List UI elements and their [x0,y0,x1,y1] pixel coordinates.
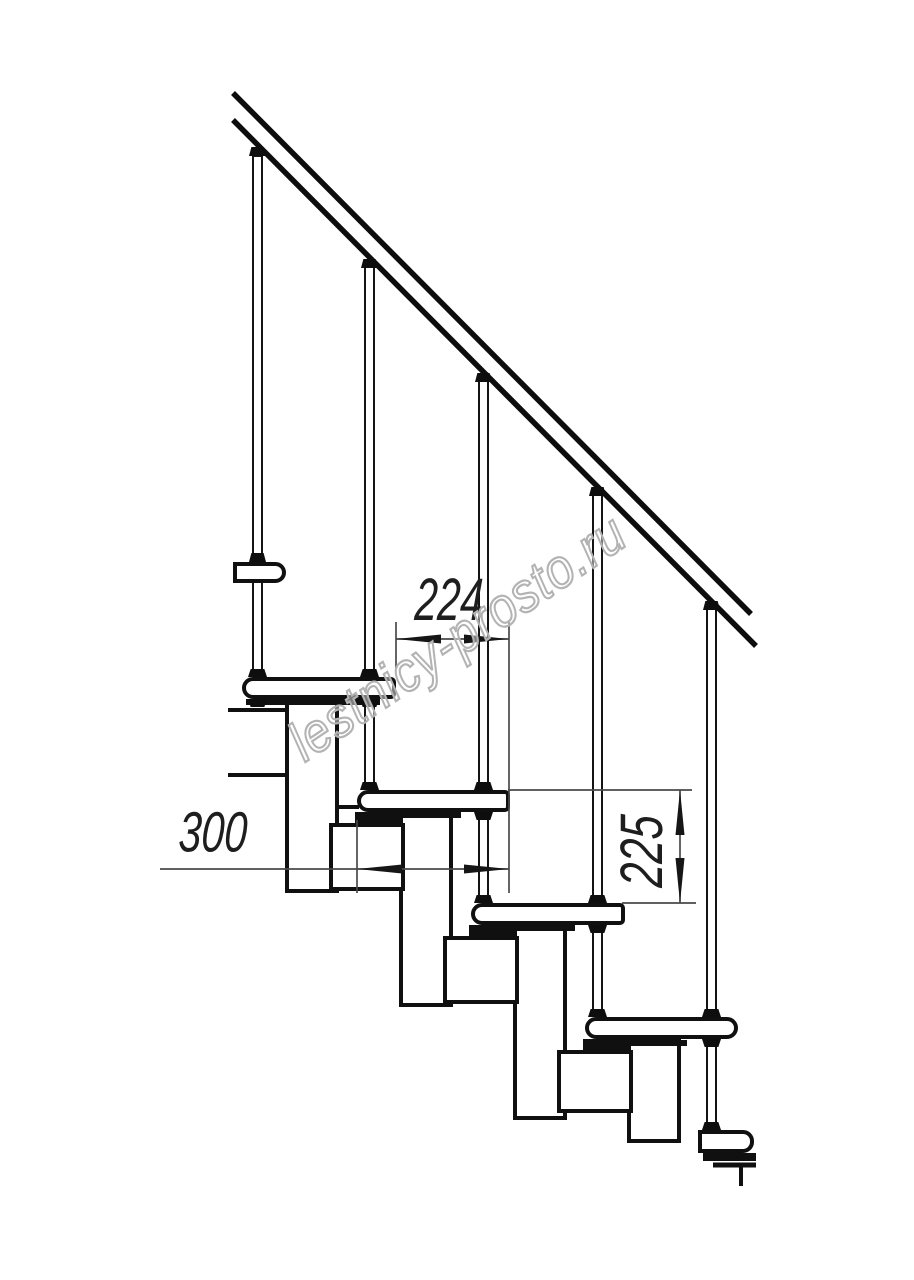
handrail-top-line [233,93,751,614]
handrail-bottom-line [233,120,756,646]
staircase-elevation-drawing: 224 300 225 lestnicy-prosto.ru [0,0,914,1280]
arrow-225-down [676,858,685,903]
arrow-300-right [464,865,509,874]
dimension-riser-label: 225 [612,813,672,888]
arrow-300-left [357,865,402,874]
arrow-225-up [676,790,685,835]
dimension-depth-label: 300 [177,805,248,862]
